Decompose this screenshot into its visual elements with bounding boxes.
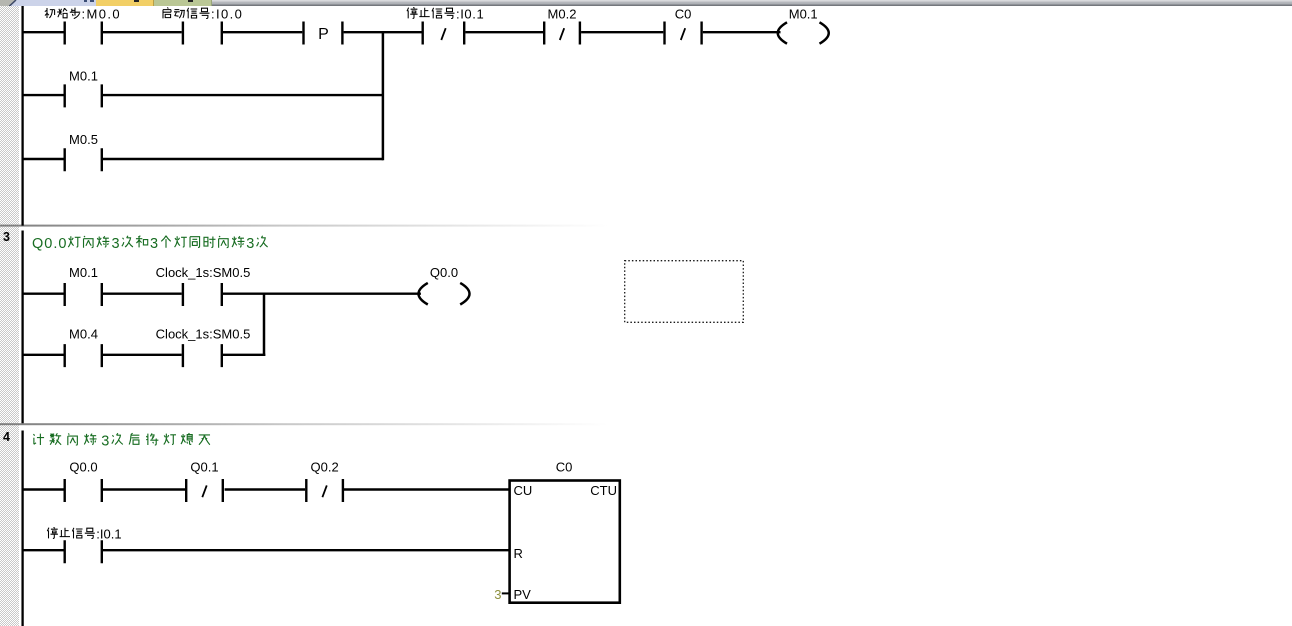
svg-text:Q0.0: Q0.0 xyxy=(69,460,97,475)
svg-text:Q0.0: Q0.0 xyxy=(32,236,67,252)
svg-text:3: 3 xyxy=(246,236,254,252)
svg-text:M0.4: M0.4 xyxy=(69,327,98,342)
svg-text:3: 3 xyxy=(112,236,120,252)
svg-text:Q0.0: Q0.0 xyxy=(430,265,458,280)
svg-text::I0.0: :I0.0 xyxy=(211,6,243,21)
svg-text::M0.0: :M0.0 xyxy=(82,6,122,21)
svg-text:M0.5: M0.5 xyxy=(69,132,98,147)
svg-text:C0: C0 xyxy=(675,6,692,21)
svg-text:Q0.1: Q0.1 xyxy=(190,460,218,475)
svg-text:Q0.2: Q0.2 xyxy=(311,460,339,475)
svg-text:4: 4 xyxy=(3,430,10,444)
svg-text:Clock_1s:SM0.5: Clock_1s:SM0.5 xyxy=(156,327,251,342)
svg-text:M0.1: M0.1 xyxy=(69,265,98,280)
svg-text:3: 3 xyxy=(150,236,158,252)
svg-text:C0: C0 xyxy=(556,460,573,475)
svg-text:PV: PV xyxy=(514,587,532,602)
svg-text::I0.1: :I0.1 xyxy=(456,6,484,21)
svg-text:3: 3 xyxy=(494,587,501,602)
svg-text:P: P xyxy=(318,26,329,43)
svg-text:Clock_1s:SM0.5: Clock_1s:SM0.5 xyxy=(156,265,251,280)
svg-text:M0.2: M0.2 xyxy=(548,6,577,21)
svg-text:CU: CU xyxy=(514,483,533,498)
svg-text:3: 3 xyxy=(101,433,109,449)
svg-text:3: 3 xyxy=(3,230,10,244)
svg-text:CTU: CTU xyxy=(590,483,617,498)
svg-text:M0.1: M0.1 xyxy=(789,6,818,21)
svg-text::I0.1: :I0.1 xyxy=(96,526,121,541)
svg-text:R: R xyxy=(514,546,523,561)
svg-text:M0.1: M0.1 xyxy=(69,68,98,83)
